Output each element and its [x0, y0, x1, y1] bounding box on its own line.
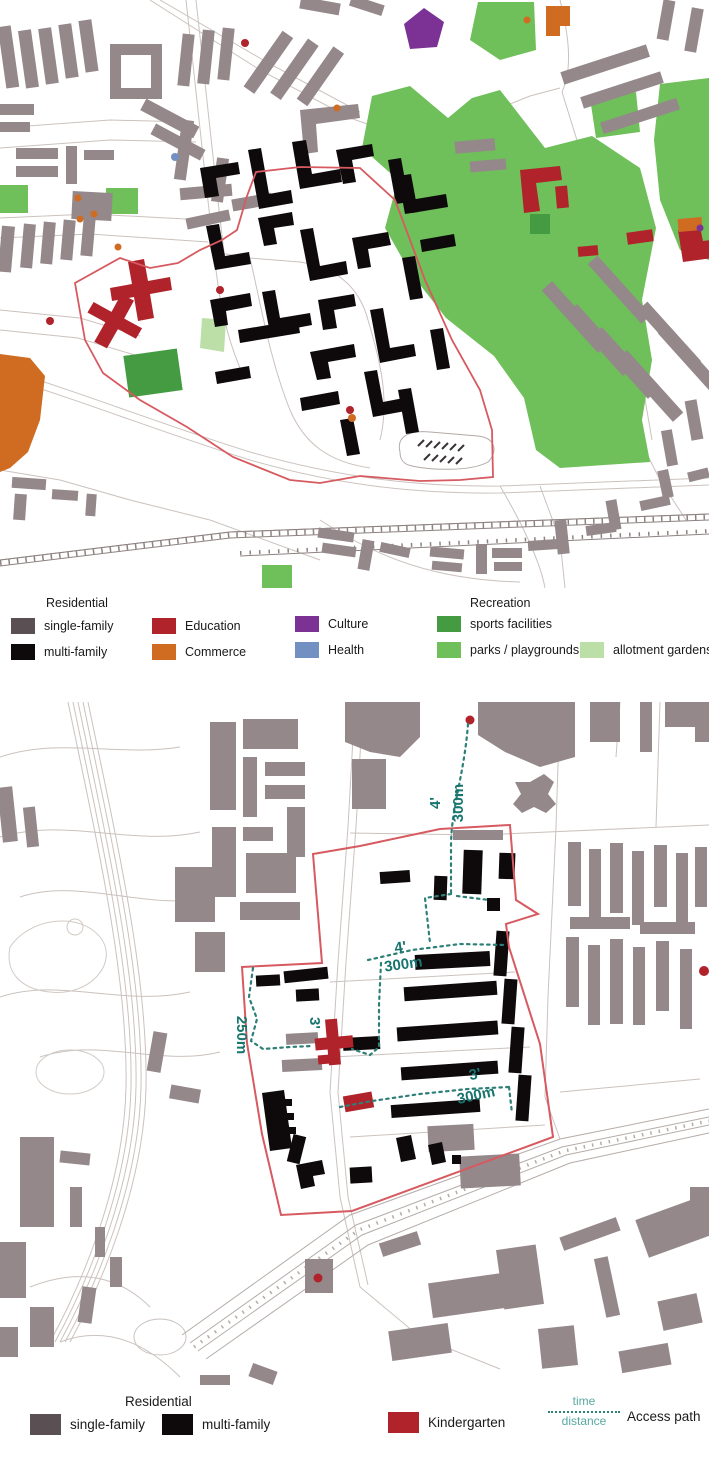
legend-item-single-family: single-family — [30, 1414, 145, 1435]
sports-swatch — [437, 616, 461, 632]
commerce-area-west — [0, 354, 45, 472]
legend-item-sports: sports facilities — [437, 616, 552, 632]
allotment-swatch — [580, 642, 604, 658]
culture-label: Culture — [328, 617, 368, 631]
health-buildings — [171, 153, 179, 161]
commerce-label: Commerce — [185, 645, 246, 659]
time-label: time — [548, 1395, 620, 1408]
legend-item-single-family: single-family — [11, 618, 113, 634]
legend-item-allotment: allotment gardens — [580, 642, 709, 658]
allotment-label: allotment gardens — [613, 643, 709, 657]
annotation-west-time: 3' — [306, 1017, 323, 1029]
legend-residential-header: Residential — [125, 1394, 192, 1409]
culture-swatch — [295, 616, 319, 632]
sports-label: sports facilities — [470, 617, 552, 631]
legend-item-multi-family: multi-family — [11, 644, 107, 660]
legend-item-parks: parks / playgrounds — [437, 642, 579, 658]
access-map-legend: Residential single-family multi-family K… — [0, 1392, 709, 1465]
distance-label: distance — [548, 1415, 620, 1428]
legend-item-education: Education — [152, 618, 241, 634]
access-path-label: Access path — [627, 1409, 701, 1424]
annotation-north-distance: 300m — [450, 784, 467, 822]
kindergarten-access-map: 4' 300m 4' 300m 3' 250m 3' 300m — [0, 702, 709, 1392]
health-swatch — [295, 642, 319, 658]
annotation-mid-distance: 300m — [383, 953, 423, 975]
kindergarten-dot-south — [314, 1274, 323, 1283]
single-family-label: single-family — [70, 1417, 145, 1432]
multi-family-label: multi-family — [44, 645, 107, 659]
multi-family-buildings — [256, 850, 532, 1189]
landuse-legend: Residential Recreation single-family mul… — [0, 588, 709, 702]
parks-label: parks / playgrounds — [470, 643, 579, 657]
single-family-swatch — [11, 618, 35, 634]
kindergarten-dot-north — [466, 716, 475, 725]
legend-item-multi-family: multi-family — [162, 1414, 270, 1435]
multi-family-label: multi-family — [202, 1417, 270, 1432]
parks-playgrounds-areas — [0, 2, 709, 588]
multi-family-swatch — [11, 644, 35, 660]
railway — [0, 514, 709, 566]
kindergarten-dot-east — [699, 966, 709, 976]
education-label: Education — [185, 619, 241, 633]
annotation-mid-time: 4' — [393, 938, 407, 956]
landuse-map — [0, 0, 709, 588]
annotation-southeast-distance: 300m — [456, 1083, 497, 1108]
single-family-label: single-family — [44, 619, 113, 633]
legend-recreation-header: Recreation — [470, 596, 530, 610]
annotation-north-time: 4' — [427, 797, 444, 809]
health-label: Health — [328, 643, 364, 657]
access-path-line — [548, 1411, 620, 1413]
parking-lot — [399, 432, 494, 470]
commerce-swatch — [152, 644, 176, 660]
legend-item-health: Health — [295, 642, 364, 658]
legend-item-kindergarten: Kindergarten — [388, 1412, 505, 1433]
culture-pentagon — [404, 8, 444, 49]
annotation-west-distance: 250m — [233, 1016, 250, 1054]
kindergarten-annex — [318, 1054, 331, 1064]
kindergarten-label: Kindergarten — [428, 1415, 505, 1430]
legend-item-culture: Culture — [295, 616, 368, 632]
legend-item-access-path: time distance — [548, 1395, 620, 1428]
legend-item-commerce: Commerce — [152, 644, 246, 660]
legend-residential-header: Residential — [46, 596, 108, 610]
multi-family-swatch — [162, 1414, 193, 1435]
education-swatch — [152, 618, 176, 634]
parks-swatch — [437, 642, 461, 658]
kindergarten-swatch — [388, 1412, 419, 1433]
single-family-swatch — [30, 1414, 61, 1435]
